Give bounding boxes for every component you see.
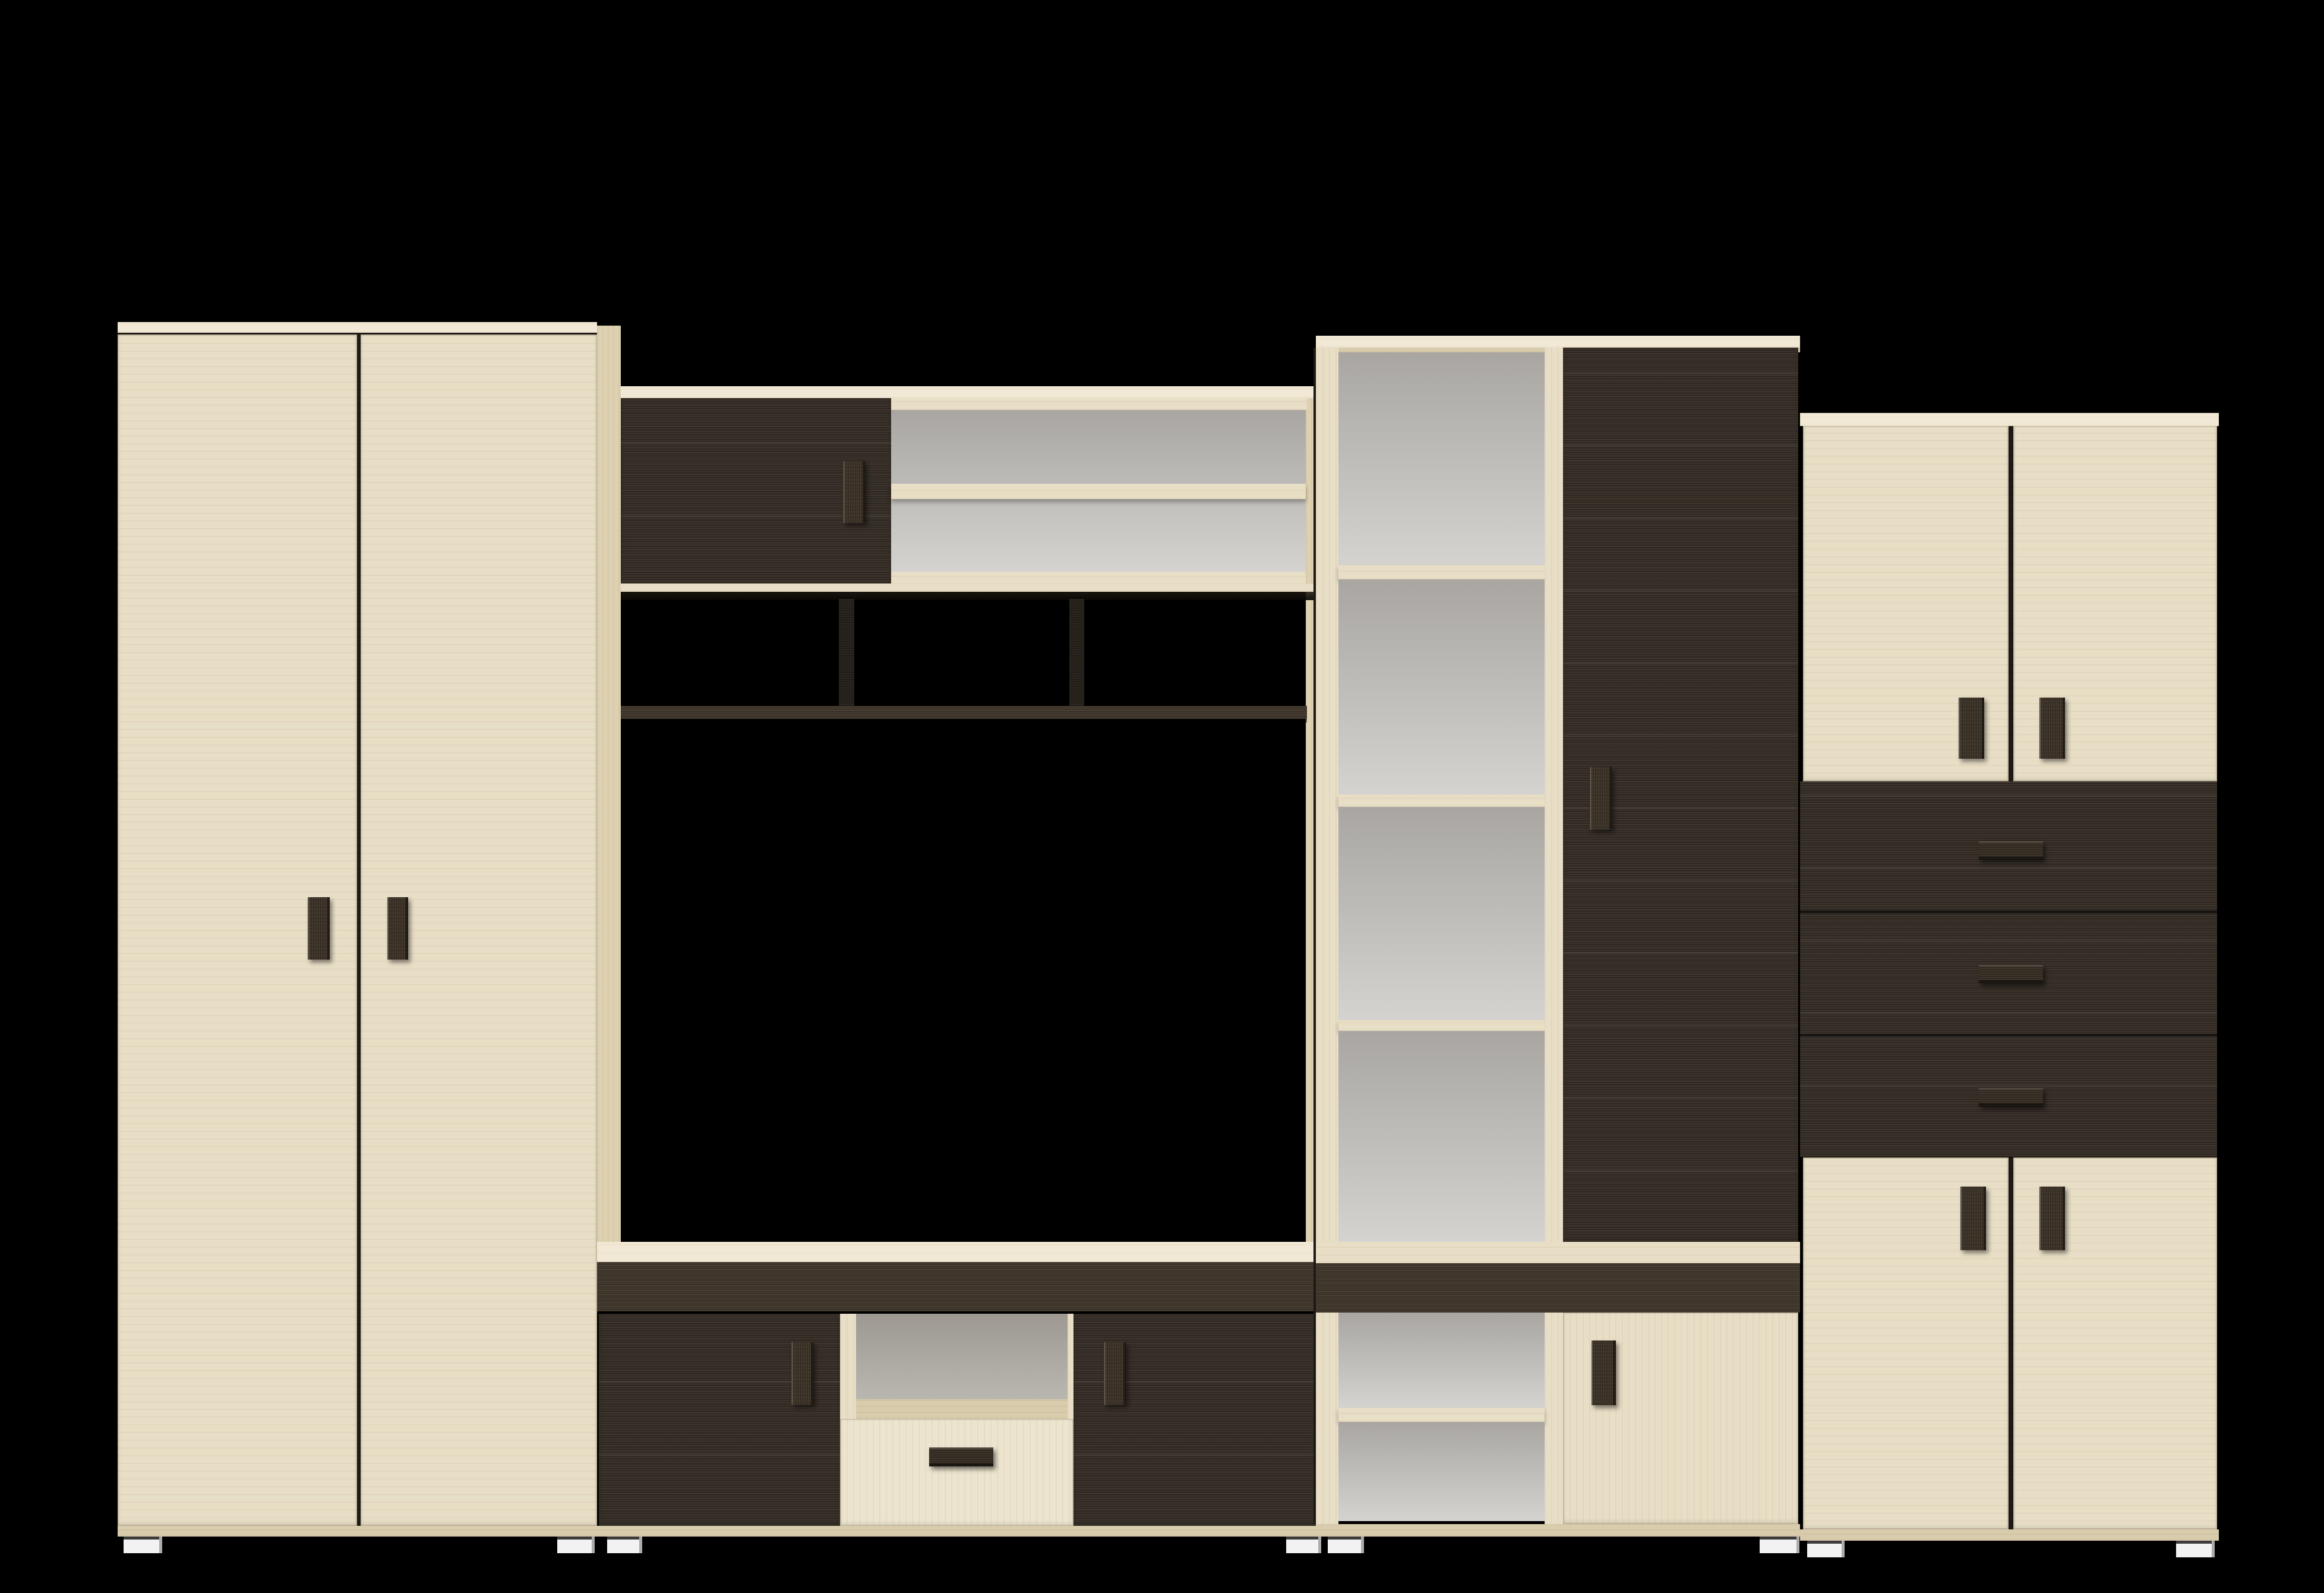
wardrobe-base [118, 1526, 597, 1537]
tower-dark-band [1316, 1263, 1800, 1313]
upper-cabinet-door-handle[interactable] [843, 461, 865, 523]
tv-stand-dark-band [597, 1262, 1316, 1311]
wardrobe-top-slab [118, 322, 597, 333]
upper-shelf-board [891, 484, 1306, 499]
cabinet-drawer-3-handle[interactable] [1979, 1088, 2043, 1106]
dark-shelf-board [621, 706, 1307, 719]
tower-compartment-4 [1338, 1031, 1545, 1242]
tv-stand-left-door-handle[interactable] [791, 1342, 813, 1405]
tower-shelf-1 [1338, 565, 1545, 579]
cabinet-top-right-handle[interactable] [2039, 698, 2065, 759]
tv-stand-right-door-handle[interactable] [1104, 1342, 1126, 1405]
tv-stand-niche-wall-right [1068, 1314, 1073, 1419]
tower-dark-door-handle[interactable] [1590, 767, 1612, 829]
tv-stand-niche-wall-left [840, 1314, 856, 1419]
wardrobe-foot-right [557, 1537, 595, 1553]
cabinet-base [1800, 1529, 2219, 1541]
tower-foot-right [1760, 1537, 1799, 1553]
cabinet-foot-left [1807, 1541, 1845, 1557]
tower-shelf-3 [1338, 1020, 1545, 1031]
upper-shelf-frame-top [891, 398, 1307, 410]
cabinet-bottom-right-handle[interactable] [2039, 1187, 2065, 1250]
tv-stand-foot-left [607, 1537, 642, 1553]
cabinet-top-door-gap [2009, 426, 2013, 781]
tower-compartment-5 [1338, 1313, 1545, 1408]
dark-shelf-edge [621, 719, 1307, 723]
cabinet-top-slab [1800, 413, 2219, 426]
upper-cabinet-bottom-panel [621, 583, 1319, 592]
cabinet-drawer-1-handle[interactable] [1979, 841, 2043, 860]
tv-stand-top [597, 1242, 1316, 1262]
tv-stand-niche-floor [856, 1399, 1068, 1419]
tower-light-band [1316, 1242, 1800, 1263]
tower-foot-left [1328, 1537, 1364, 1553]
tower-top-slab [1316, 336, 1800, 348]
tv-wall-top-slab [621, 386, 1319, 398]
cabinet-top-left-handle[interactable] [1959, 698, 1984, 759]
tower-left-wall [1316, 348, 1338, 1524]
cabinet-drawer-gap-2 [1800, 1034, 2217, 1036]
tv-stand-base [597, 1526, 1316, 1537]
niche-divider-left [839, 599, 854, 706]
furniture-scene [0, 0, 2324, 1593]
wardrobe-left-door-handle[interactable] [308, 897, 330, 960]
wardrobe-foot-left [124, 1537, 162, 1553]
tower-compartment-1 [1338, 352, 1545, 565]
tv-stand-niche-back [856, 1314, 1068, 1399]
wardrobe-right-door-handle[interactable] [387, 897, 408, 960]
tower-shelf-4 [1338, 1408, 1545, 1422]
wardrobe-side-panel [597, 326, 621, 1242]
cabinet-bottom-door-gap [2009, 1157, 2013, 1529]
cabinet-drawer-2-handle[interactable] [1979, 965, 2043, 983]
tower-base [1316, 1524, 1800, 1537]
upper-cabinet-soffit [621, 592, 1319, 600]
tower-shelf-2 [1338, 794, 1545, 807]
tower-light-door-handle[interactable] [1592, 1340, 1616, 1405]
cabinet-foot-right [2176, 1541, 2215, 1557]
tower-center-divider [1545, 348, 1563, 1524]
tower-compartment-6 [1338, 1422, 1545, 1521]
cabinet-bottom-left-handle[interactable] [1960, 1187, 1986, 1250]
tv-stand-drawer[interactable] [840, 1419, 1073, 1526]
tower-left-seam [1313, 348, 1316, 1524]
tv-stand-foot-right [1286, 1537, 1321, 1553]
tv-stand-drawer-handle[interactable] [929, 1447, 993, 1466]
upper-shelf-floor [891, 572, 1306, 585]
cabinet-drawer-gap-1 [1800, 910, 2217, 913]
tower-compartment-2 [1338, 579, 1545, 794]
tower-compartment-3 [1338, 807, 1545, 1020]
niche-divider-right [1069, 599, 1084, 706]
